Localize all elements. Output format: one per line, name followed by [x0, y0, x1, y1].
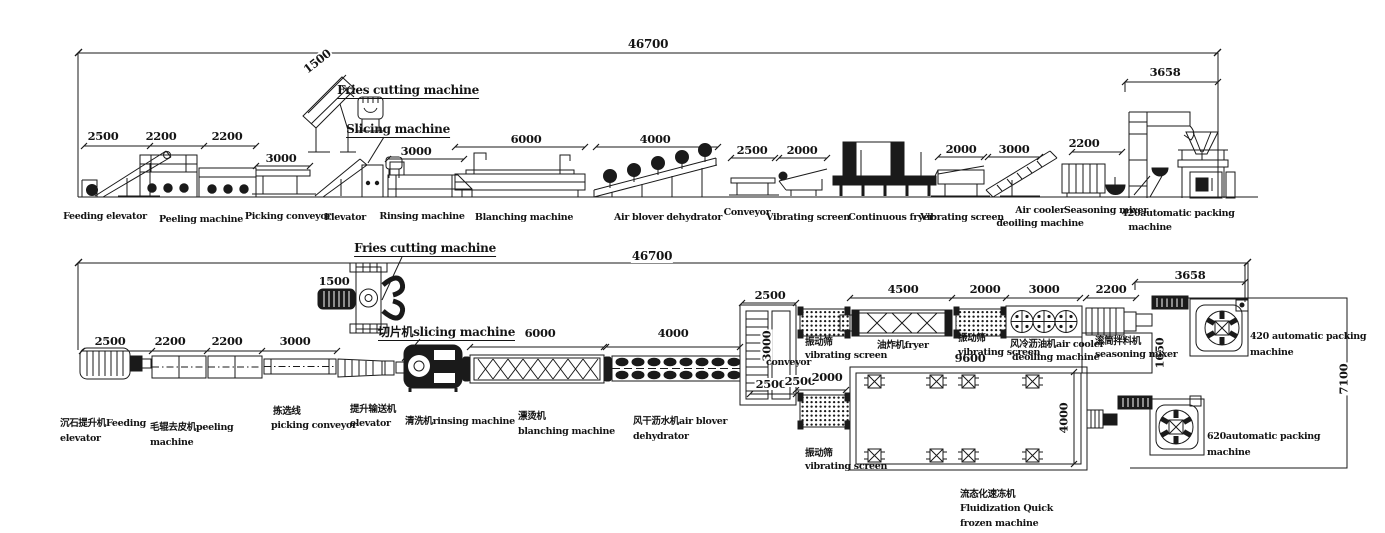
label-vibrating2a-plan: 振动筛	[958, 334, 986, 344]
label-picking-1-plan: 拣选线	[273, 407, 301, 417]
label-elevator-side: Elevator	[324, 213, 366, 223]
label-rinsing-side: Rinsing machine	[379, 212, 464, 222]
label-blanching-side: Blanching machine	[475, 213, 573, 223]
label-slicing-side: Slicing machine	[346, 123, 450, 138]
dim-fryer-plan: 4500	[887, 283, 920, 295]
label-freezer-3-plan: frozen machine	[960, 519, 1038, 529]
dim-packing-plan: 3658	[1174, 269, 1207, 281]
label-conveyor-side: Conveyor	[724, 208, 771, 218]
label-feeding-2-plan: elevator	[60, 434, 101, 444]
dim-peeling2-plan: 2200	[211, 335, 244, 347]
dim-blanching-plan: 6000	[524, 327, 557, 339]
label-feeding-side: Feeding elevator	[63, 212, 147, 222]
label-packing420-2-plan: machine	[1250, 348, 1293, 358]
label-picking-2-plan: picking conveyor	[271, 421, 357, 431]
dim-picking-side: 3000	[265, 152, 298, 164]
label-fryer-plan: 油炸机fryer	[877, 341, 929, 351]
label-dehydrator-1-plan: 风干沥水机air blover	[633, 417, 727, 427]
dim-room-width-plan: 7100	[1337, 363, 1349, 396]
dim-rinsing-side: 3000	[400, 145, 433, 157]
dim-air-cooler-plan: 3000	[1028, 283, 1061, 295]
label-vibrating3a-plan: 振动筛	[805, 449, 833, 459]
dim-picking-plan: 3000	[279, 335, 312, 347]
label-vibrating1b-plan: vibrating screen	[805, 351, 887, 361]
label-peeling-1-plan: 毛辊去皮机peeling	[150, 423, 233, 433]
label-feeding-1-plan: 沉石提升机Feeding	[60, 419, 146, 429]
dim-peeling2-side: 2200	[211, 130, 244, 142]
dim-overall-side: 46700	[627, 38, 669, 51]
label-seasoning-2-plan: seasoning mixer	[1095, 350, 1177, 360]
dim-feeding-plan: 2500	[94, 335, 127, 347]
dim-feeding-side: 2500	[87, 130, 120, 142]
dim-freezer-width-plan: 4000	[1057, 402, 1069, 435]
dim-dehydrator-plan: 4000	[657, 327, 690, 339]
label-vibrating1a-plan: 振动筛	[805, 338, 833, 348]
dim-branch1-plan: 2500	[755, 378, 788, 390]
dim-conveyor-width-plan: 2500	[754, 289, 787, 301]
label-freezer-2-plan: Fluidization Quick	[960, 504, 1053, 514]
dim-conveyor-side: 2500	[736, 144, 769, 156]
label-packing420-1-plan: 420 automatic packing	[1250, 332, 1366, 342]
dim-vibrating2-plan: 2000	[969, 283, 1002, 295]
label-elevator-2-plan: elevator	[350, 419, 391, 429]
dim-overall-plan: 46700	[631, 250, 673, 263]
label-seasoning-1-plan: 滚筒拌料机	[1095, 337, 1141, 347]
label-freezer-1-plan: 流态化速冻机	[960, 490, 1015, 500]
label-vibrating1-side: Vibrating screen	[766, 213, 850, 223]
label-picking-side: Picking conveyor	[245, 212, 331, 222]
label-air-cooler-2-plan: deoiling machine	[1012, 353, 1099, 363]
label-fries-cutting-plan: Fries cutting machine	[354, 242, 496, 257]
label-blanching-2-plan: blanching machine	[518, 427, 615, 437]
dim-blanching-side: 6000	[510, 133, 543, 145]
dim-fries-cutting-plan: 1500	[318, 275, 351, 287]
label-dehydrator-2-plan: dehydrator	[633, 432, 689, 442]
label-dehydrator-side: Air blover dehydrator	[614, 213, 722, 223]
label-air-cooler-1-plan: 风冷沥油机air cooler	[1010, 340, 1104, 350]
dim-branch3-plan: 2000	[811, 371, 844, 383]
label-slicing-plan: 切片机slicing machine	[378, 326, 515, 341]
label-blanching-1-plan: 漂烫机	[518, 412, 546, 422]
label-peeling-side: Peeling machine	[159, 215, 243, 225]
label-elevator-1-plan: 提升输送机	[350, 405, 396, 415]
dim-air-cooler-side: 3000	[998, 143, 1031, 155]
label-air-cooler-2-side: deoiling machine	[996, 219, 1083, 229]
label-packing-1-side: 420automatic packing	[1121, 209, 1234, 219]
label-peeling-2-plan: machine	[150, 438, 193, 448]
dim-peeling1-side: 2200	[145, 130, 178, 142]
dim-packing-side: 3658	[1149, 66, 1182, 78]
label-air-cooler-1-side: Air cooler	[1015, 206, 1064, 216]
label-packing620-1-plan: 620automatic packing	[1207, 432, 1320, 442]
dim-seasoning-side: 2200	[1068, 137, 1101, 149]
dim-dehydrator-side: 4000	[639, 133, 672, 145]
label-packing620-2-plan: machine	[1207, 448, 1250, 458]
label-packing-2-side: machine	[1128, 223, 1171, 233]
label-vibrating3b-plan: vibrating screen	[805, 462, 887, 472]
label-fries-cutting-side: Fries cutting machine	[337, 84, 479, 99]
production-line-layout-drawing: 46700 2500 2200 2200 3000 1500 3000 6000…	[0, 0, 1385, 533]
label-rinsing-plan: 清洗机rinsing machine	[405, 417, 515, 427]
dim-vibrating1-side: 2000	[786, 144, 819, 156]
label-vibrating2-side: Vibrating screen	[920, 213, 1004, 223]
dim-peeling1-plan: 2200	[154, 335, 187, 347]
dim-vibrating2-side: 2000	[945, 143, 978, 155]
line-art	[0, 0, 1385, 533]
dim-seasoning-plan: 2200	[1095, 283, 1128, 295]
